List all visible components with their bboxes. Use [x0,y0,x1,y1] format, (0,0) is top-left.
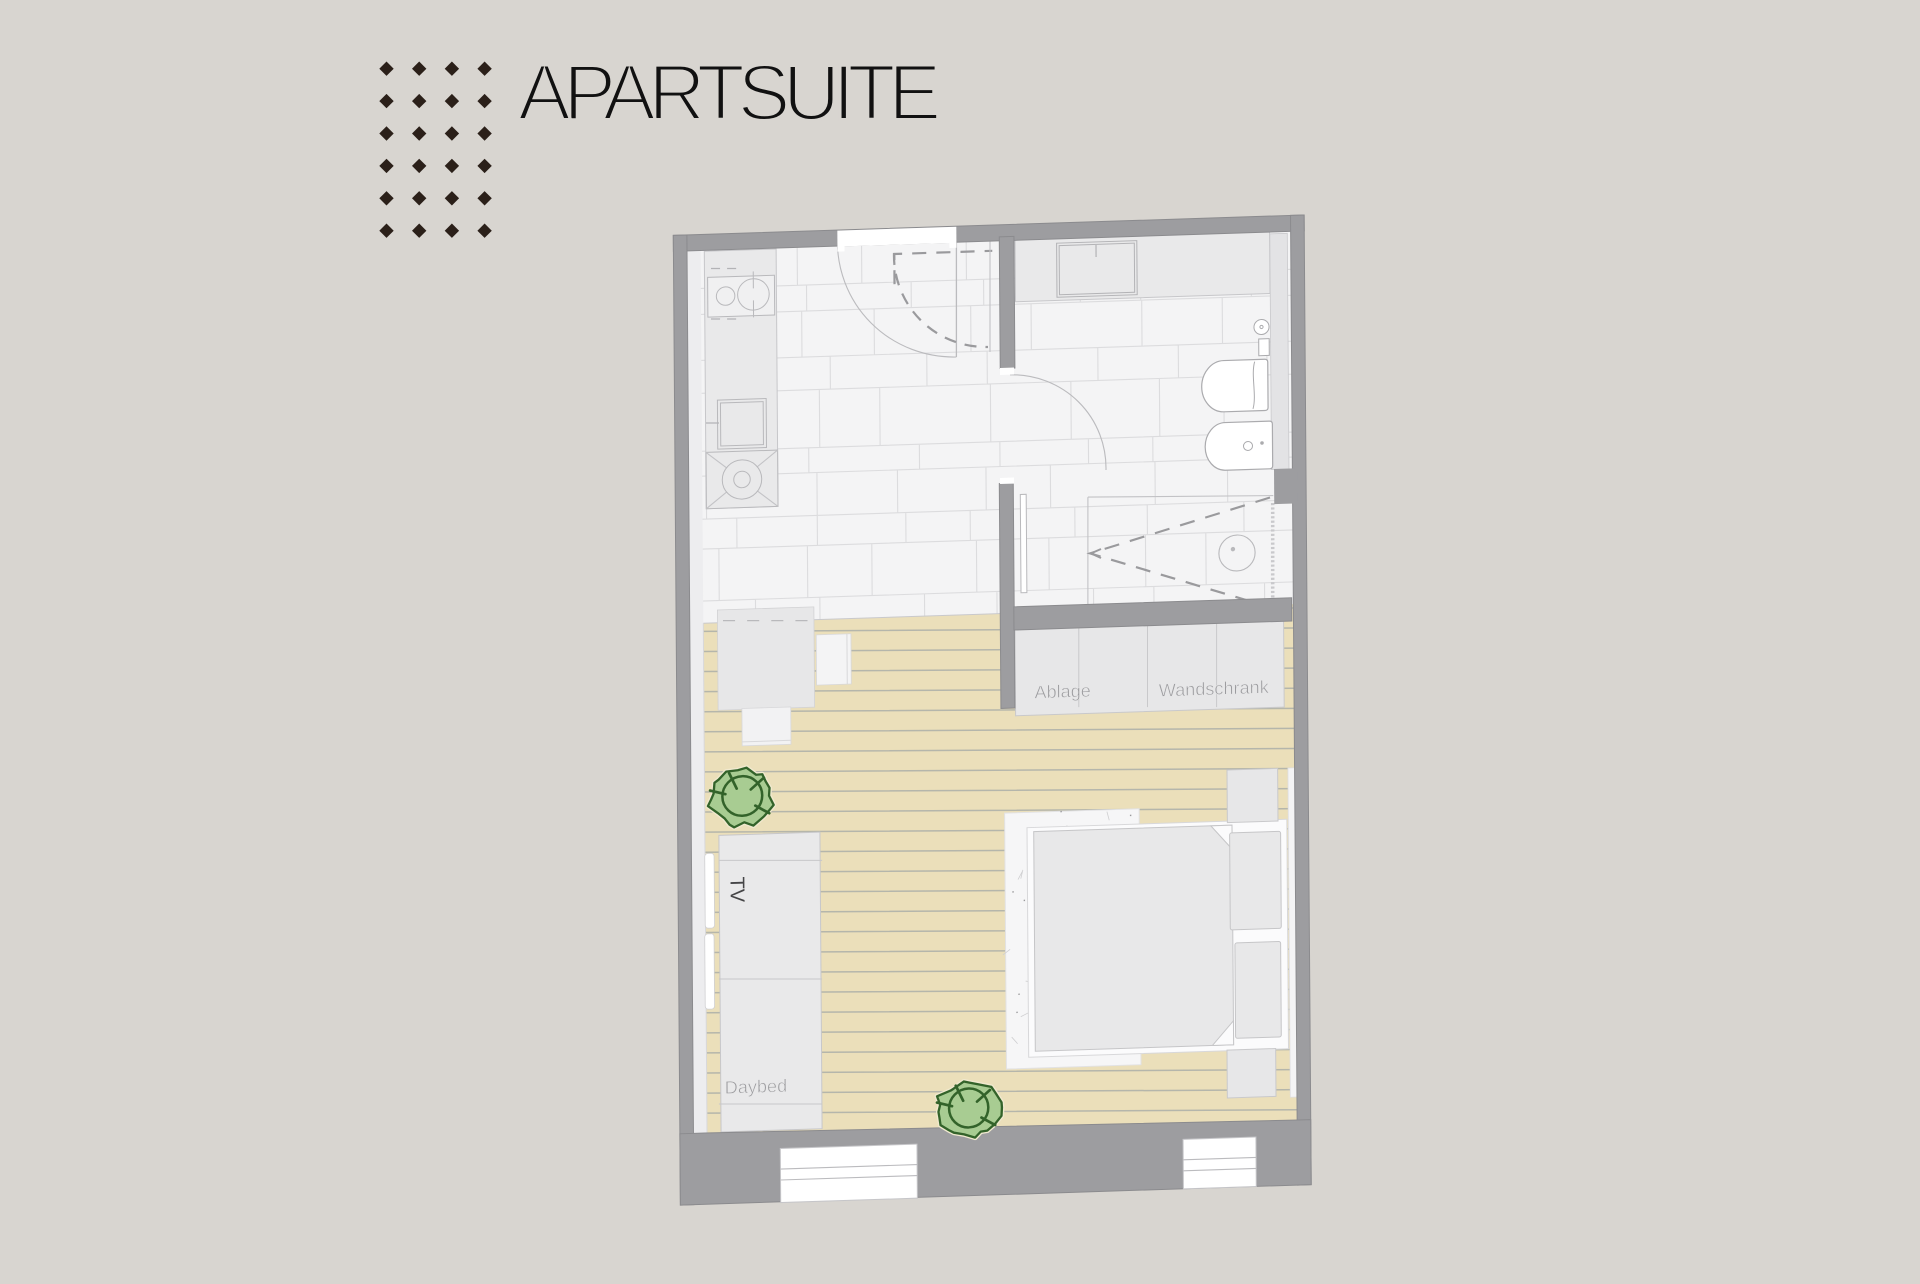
svg-text:Wandschrank: Wandschrank [1159,677,1270,701]
svg-text:TV: TV [725,876,747,903]
svg-text:Ablage: Ablage [1034,681,1090,703]
svg-text:Daybed: Daybed [725,1076,788,1098]
svg-text:APARTSUITE: APARTSUITE [518,48,938,137]
